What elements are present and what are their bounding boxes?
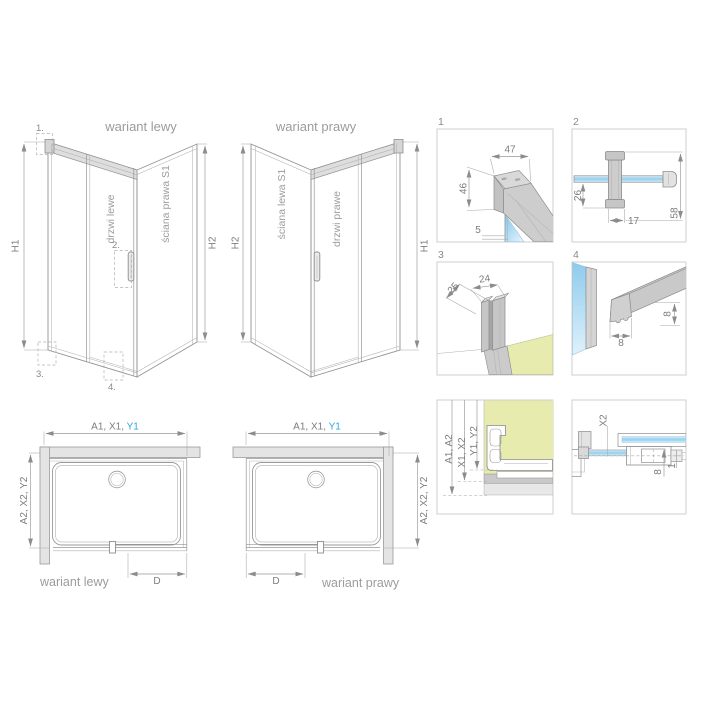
plan-width-dim-text-right: A1, X1, bbox=[293, 422, 328, 433]
detail-6-dim-1: 1 bbox=[667, 463, 678, 469]
detail-1-dim-46: 46 bbox=[459, 183, 470, 195]
detail-2-handle-top-cap bbox=[606, 152, 625, 161]
callout-4-label: 4. bbox=[108, 382, 116, 393]
detail-2-dim-17: 17 bbox=[628, 216, 640, 227]
plan-depth-dimension-right: A2, X2, Y2 bbox=[419, 476, 430, 524]
h2-dimension-label-right: H2 bbox=[231, 236, 242, 249]
h2-dimension-label: H2 bbox=[208, 236, 219, 249]
detail-6-wall-bracket bbox=[579, 432, 592, 449]
detail-2-handle-bottom-cap bbox=[606, 200, 625, 209]
detail-4-dim-8-bottom: 8 bbox=[618, 338, 624, 349]
detail-2-dim-26: 26 bbox=[573, 190, 584, 202]
plan-right-label: wariant prawy bbox=[321, 576, 400, 590]
door-panel-label: drzwi lewe bbox=[105, 194, 117, 243]
detail-box-6: X2 8 1 bbox=[572, 400, 686, 514]
detail-6-dim-8: 8 bbox=[653, 469, 664, 475]
detail-6-dim-x2: X2 bbox=[599, 414, 610, 427]
detail-3-guide-plate-left bbox=[482, 300, 490, 352]
plan-width-dim-text: A1, X1, bbox=[91, 422, 126, 433]
detail-6-glass-clamp bbox=[579, 447, 589, 459]
callout-1-label: 1. bbox=[36, 123, 44, 134]
door-panel-label-right: drzwi prawe bbox=[331, 191, 343, 247]
detail-2-number: 2 bbox=[573, 116, 579, 128]
detail-5-glass-seat bbox=[497, 472, 553, 479]
detail-5-dim-a: A1, A2 bbox=[444, 434, 455, 464]
detail-4-dim-8-side: 8 bbox=[663, 311, 674, 317]
detail-1-dim-5: 5 bbox=[475, 225, 481, 236]
shower-enclosure-technical-drawing: wariant lewy H1 H2 drzwi lewe ściana pra… bbox=[0, 0, 720, 720]
left-plan-view: A1, X1, Y1 A2, X2, Y2 D wariant lewy bbox=[19, 422, 200, 590]
callout-3-label: 3. bbox=[36, 369, 44, 380]
detail-1-number: 1 bbox=[438, 116, 444, 128]
detail-box-2: 2 26 17 58 bbox=[572, 116, 686, 242]
detail-4-number: 4 bbox=[573, 249, 579, 261]
detail-1-dim-47: 47 bbox=[504, 145, 516, 156]
wall-panel-label: ściana prawa S1 bbox=[160, 165, 172, 243]
detail-2-dim-58: 58 bbox=[670, 207, 681, 219]
left-perspective-view: wariant lewy H1 H2 drzwi lewe ściana pra… bbox=[11, 119, 219, 393]
detail-3-number: 3 bbox=[438, 249, 444, 261]
detail-2-end-cap bbox=[663, 172, 677, 188]
door-width-dimension-right: D bbox=[272, 576, 279, 587]
left-variant-title: wariant lewy bbox=[104, 119, 177, 134]
detail-box-1: 1 47 46 5 bbox=[437, 116, 554, 242]
plan-width-dimension: A1, X1, Y1 bbox=[91, 422, 139, 433]
detail-box-5: A1, A2 X1, X2 Y1, Y2 bbox=[437, 400, 553, 514]
detail-4-glass-panel bbox=[573, 263, 587, 356]
callout-2-label: 2. bbox=[112, 240, 120, 251]
plan-width-dimension-right: A1, X1, Y1 bbox=[293, 422, 341, 433]
detail-3-guide-plate-right bbox=[493, 297, 506, 350]
right-perspective-view: wariant prawy H2 H1 ściana lewa S1 drzwi… bbox=[231, 119, 431, 377]
detail-3-dim-24: 24 bbox=[478, 273, 491, 286]
detail-2-handle-shaft bbox=[609, 160, 622, 200]
detail-box-3: 3 24 25 bbox=[437, 249, 553, 375]
right-plan-view: A1, X1, Y1 A2, X2, Y2 D wariant prawy bbox=[233, 422, 430, 591]
plan-left-label: wariant lewy bbox=[39, 575, 110, 589]
drawing-canvas: wariant lewy H1 H2 drzwi lewe ściana pra… bbox=[0, 0, 720, 720]
detail-5-tray-edge bbox=[484, 484, 553, 496]
h1-dimension-label-right: H1 bbox=[420, 239, 431, 252]
detail-3-guide-slot bbox=[489, 300, 493, 350]
detail-box-4: 4 8 8 bbox=[572, 249, 720, 375]
right-variant-title: wariant prawy bbox=[275, 119, 357, 134]
callout-box-3 bbox=[38, 342, 56, 365]
door-width-dimension: D bbox=[153, 576, 160, 587]
detail-6-door-glass bbox=[622, 437, 686, 443]
detail-5-dim-x: X1, X2 bbox=[457, 437, 468, 467]
plan-width-dim-highlight: Y1 bbox=[127, 422, 140, 433]
detail-5-dim-y: Y1, Y2 bbox=[469, 426, 480, 456]
h1-dimension-label: H1 bbox=[11, 239, 22, 252]
wall-panel-label-right: ściana lewa S1 bbox=[276, 169, 288, 240]
plan-depth-dimension: A2, X2, Y2 bbox=[19, 476, 30, 524]
plan-width-dim-highlight-right: Y1 bbox=[329, 422, 342, 433]
